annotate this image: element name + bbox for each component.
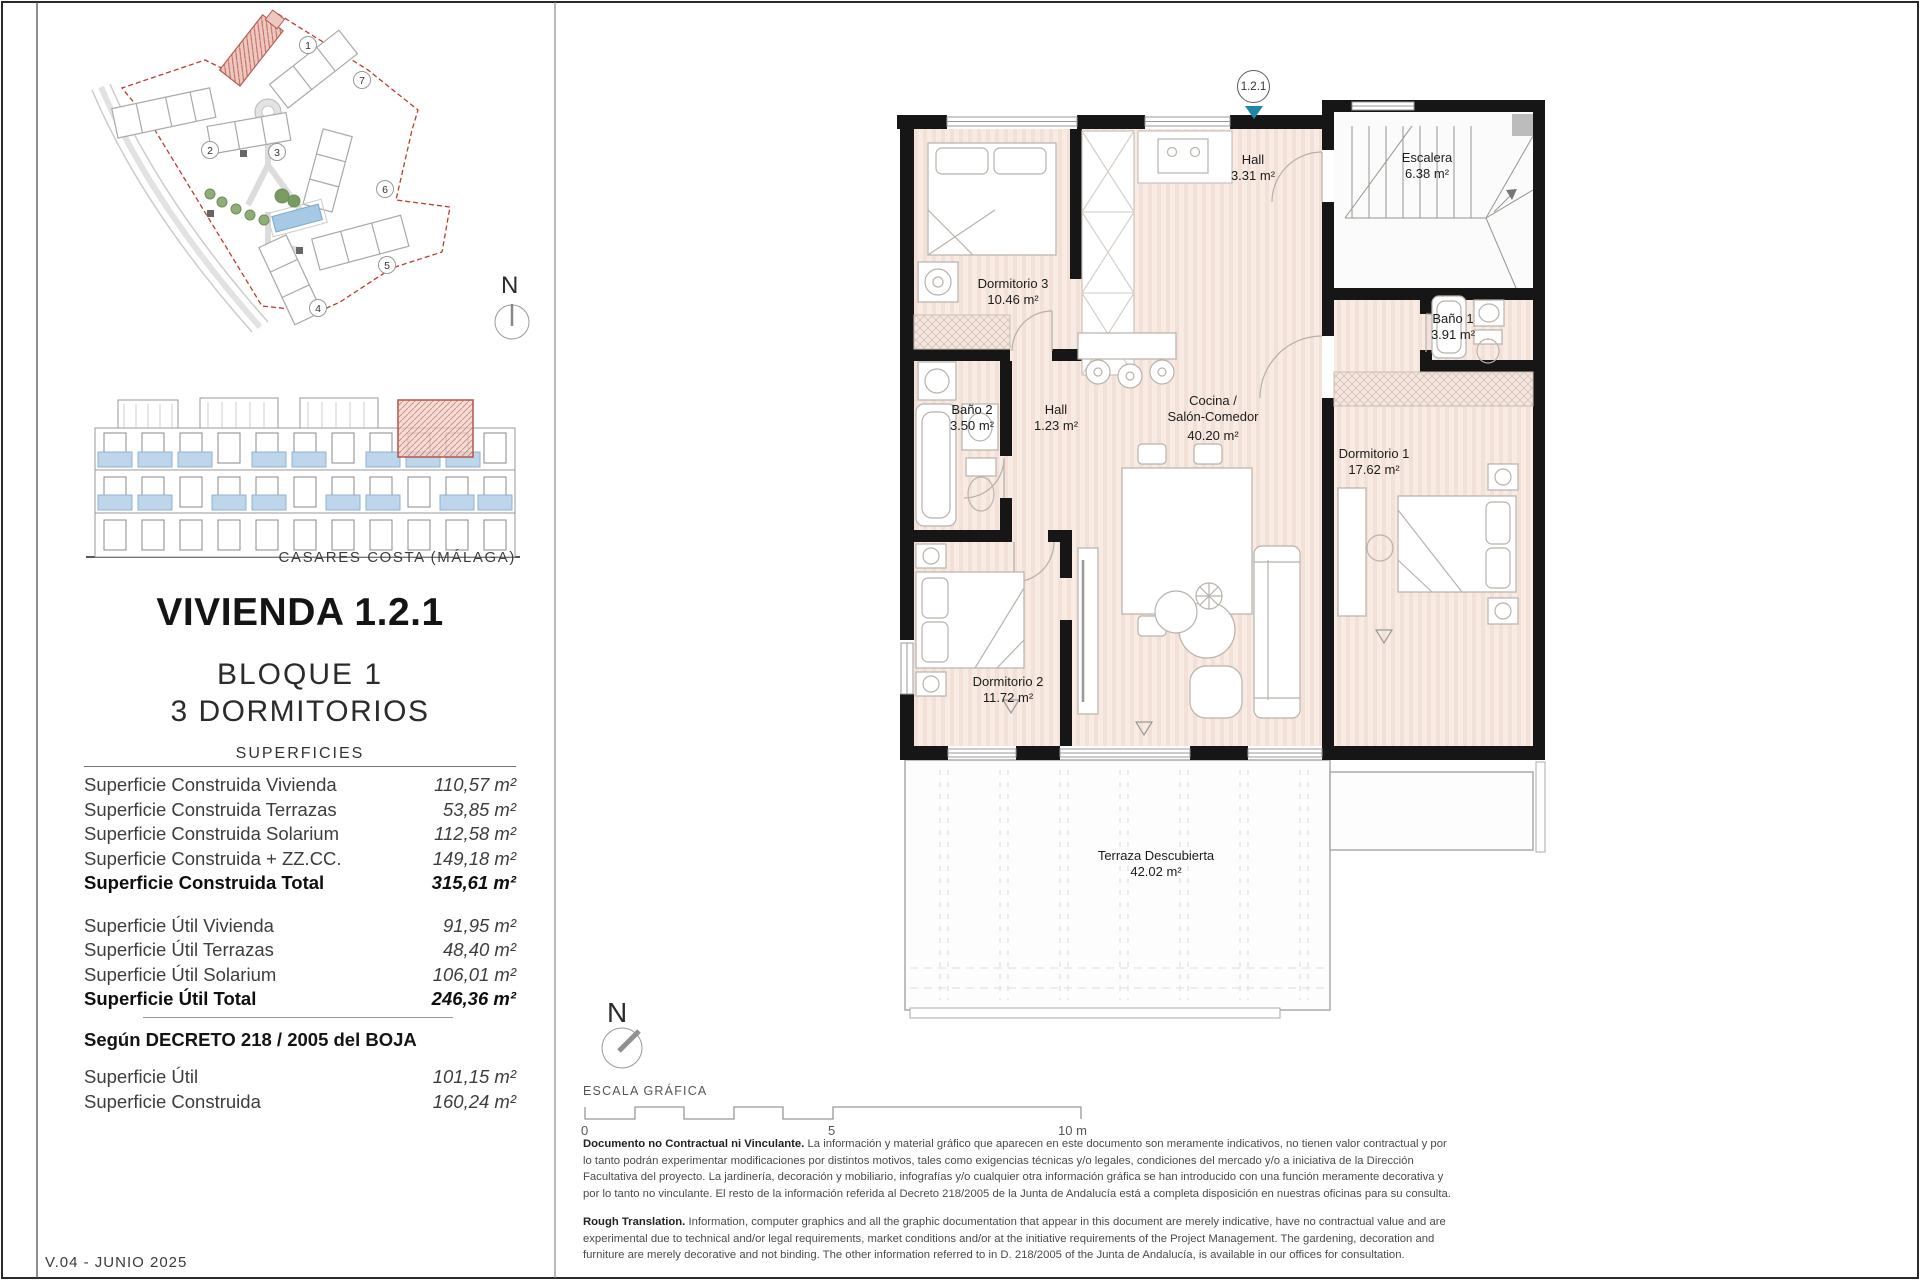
table-row-total: Superficie Útil Total246,36 m² <box>84 988 516 1013</box>
table-row: Superficie Construida Terrazas53,85 m² <box>84 799 516 824</box>
location-label: CASARES COSTA (MÁLAGA) <box>230 549 516 566</box>
room-label-dormitorio3: Dormitorio 310.46 m² <box>943 276 1083 307</box>
scale-bar-heading: ESCALA GRÁFICA <box>583 1084 707 1098</box>
divider-rule <box>84 766 516 767</box>
decreto-table: Superficie Útil101,15 m² Superficie Cons… <box>84 1066 516 1115</box>
table-row: Superficie Útil Vivienda91,95 m² <box>84 915 516 940</box>
north-label: N <box>501 272 518 300</box>
plan-sheet: 1 2 3 4 5 6 7 <box>0 0 1920 1280</box>
elevation-highlight-unit <box>398 400 473 457</box>
divider-rule <box>143 1017 453 1018</box>
site-building-label: 1 <box>305 40 311 52</box>
surfaces-table: Superficie Construida Vivienda110,57 m² … <box>84 774 516 1013</box>
table-row: Superficie Construida Solarium112,58 m² <box>84 823 516 848</box>
room-label-escalera: Escalera6.38 m² <box>1367 150 1487 181</box>
floor-plan <box>897 100 1545 1018</box>
table-row: Superficie Útil101,15 m² <box>84 1066 516 1091</box>
room-label-bano1: Baño 13.91 m² <box>1403 311 1503 342</box>
terrace <box>905 760 1545 1018</box>
table-row: Superficie Útil Solarium106,01 m² <box>84 964 516 989</box>
block-subtitle: BLOQUE 1 <box>80 658 520 692</box>
table-row: Superficie Construida160,24 m² <box>84 1091 516 1116</box>
site-building-label: 2 <box>207 145 213 157</box>
disclaimer-es: Documento no Contractual ni Vinculante. … <box>583 1136 1453 1202</box>
site-plan: 1 2 3 4 5 6 7 <box>92 7 450 332</box>
north-label-plan: N <box>607 997 627 1029</box>
page-title: VIVIENDA 1.2.1 <box>80 591 520 635</box>
north-arrow-icon <box>495 304 529 339</box>
site-building-label: 3 <box>274 147 280 159</box>
table-row: Superficie Útil Terrazas48,40 m² <box>84 939 516 964</box>
room-label-hall: Hall1.23 m² <box>1016 402 1096 433</box>
table-row-total: Superficie Construida Total315,61 m² <box>84 872 516 897</box>
scale-bar <box>585 1107 1081 1119</box>
site-building-label: 5 <box>384 260 390 272</box>
version-label: V.04 - JUNIO 2025 <box>45 1254 187 1271</box>
room-label-dormitorio1: Dormitorio 117.62 m² <box>1304 446 1444 477</box>
legal-disclaimer: Documento no Contractual ni Vinculante. … <box>583 1136 1453 1276</box>
decreto-heading: Según DECRETO 218 / 2005 del BOJA <box>84 1029 417 1051</box>
room-label-terraza: Terraza Descubierta42.02 m² <box>1056 848 1256 879</box>
room-label-cocina-salon: Cocina / Salón-Comedor 40.20 m² <box>1143 393 1283 444</box>
disclaimer-en: Rough Translation. Information, computer… <box>583 1214 1453 1264</box>
site-building-label: 4 <box>315 303 321 315</box>
room-label-hall-top: Hall3.31 m² <box>1213 152 1293 183</box>
room-label-dormitorio2: Dormitorio 211.72 m² <box>938 674 1078 705</box>
surfaces-heading: SUPERFICIES <box>84 745 516 763</box>
site-building-label: 6 <box>382 184 388 196</box>
bedrooms-subtitle: 3 DORMITORIOS <box>80 695 520 729</box>
site-building-label: 7 <box>359 75 365 87</box>
table-row: Superficie Construida Vivienda110,57 m² <box>84 774 516 799</box>
room-label-bano2: Baño 23.50 m² <box>922 402 1022 433</box>
north-arrow-plan-icon <box>602 1028 642 1068</box>
unit-marker-arrow-icon <box>1245 106 1263 119</box>
site-building-1-highlight <box>220 7 290 86</box>
table-row: Superficie Construida + ZZ.CC.149,18 m² <box>84 848 516 873</box>
unit-marker-badge: 1.2.1 <box>1237 70 1270 103</box>
elevation-drawing <box>86 398 520 557</box>
